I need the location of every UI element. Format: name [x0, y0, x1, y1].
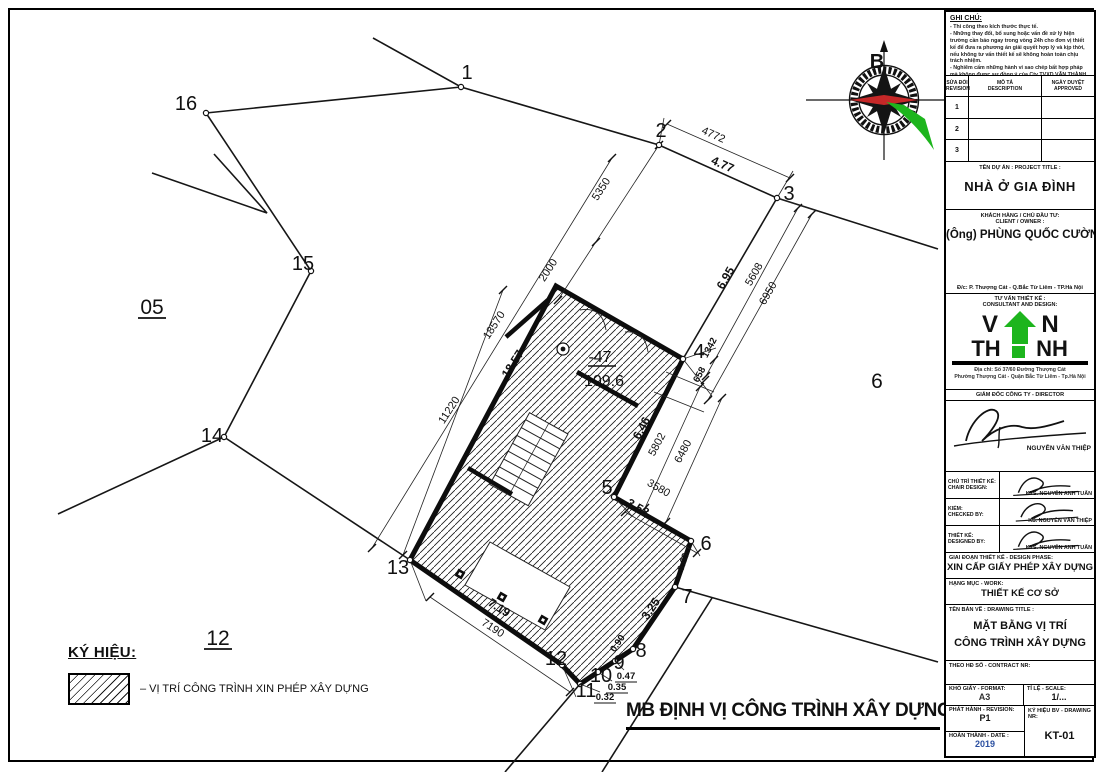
date-value: 2019 [946, 739, 1024, 749]
point-label: 13 [387, 557, 409, 579]
revision-number: 3 [946, 140, 969, 161]
dim: 0.32 [596, 692, 615, 703]
svg-text:NH: NH [1036, 336, 1068, 360]
lot-area: 109.6 [584, 373, 624, 390]
compass-rose-icon: B [806, 40, 956, 160]
meta-grid: KHỔ GIẤY - FORMAT: A3 TỈ LỆ - SCALE: 1/.… [946, 685, 1094, 756]
project-name: NHÀ Ở GIA ĐÌNH [946, 179, 1094, 194]
company-name-bar [952, 361, 1088, 365]
staff-name: KTS. NGUYỄN ANH TUẤN [1026, 545, 1092, 551]
revision-col-header: SỬA ĐỔIREVISION [946, 76, 969, 96]
staff-name: KTS. NGUYỄN ANH TUẤN [1026, 491, 1092, 497]
director-name: NGUYỄN VĂN THIỆP [1027, 445, 1091, 452]
point-label: 14 [201, 425, 223, 447]
svg-text:V: V [982, 311, 998, 338]
client-label-en: CLIENT / OWNER : [946, 219, 1094, 225]
point-label: 15 [292, 253, 314, 275]
point-label: 11 [576, 680, 597, 702]
point-label: 3 [783, 183, 794, 205]
revision-value: P1 [946, 713, 1024, 723]
scale-value: 1/... [1024, 692, 1094, 702]
director-signature [946, 401, 1092, 451]
project-section: TÊN DỰ ÁN : PROJECT TITLE : NHÀ Ở GIA ĐÌ… [946, 162, 1094, 210]
dim: 5350 [590, 176, 613, 203]
dim: 4.77 [709, 153, 736, 175]
revision-cell: PHÁT HÀNH - REVISION: P1 [946, 706, 1024, 732]
drawing-title-section: TÊN BẢN VẼ : DRAWING TITLE : MẶT BẰNG VỊ… [946, 605, 1094, 661]
project-label: TÊN DỰ ÁN : PROJECT TITLE : [946, 165, 1094, 171]
point-label: 7 [681, 586, 692, 608]
dim: 5608 [743, 261, 766, 288]
chair-design-row: CHỦ TRÌ THIẾT KẾ: CHAIR DESIGN: KTS. NGU… [946, 472, 1094, 499]
svg-text:TH: TH [971, 336, 1000, 360]
drawing-title-line1: MẶT BẰNG VỊ TRÍ [946, 620, 1094, 632]
notes-section: GHI CHÚ: - Thi công theo kích thước thực… [946, 12, 1094, 76]
drawing-number-value: KT-01 [1025, 730, 1094, 742]
phase-label: GIAI ĐOẠN THIẾT KẾ - DESIGN PHASE: [946, 553, 1094, 561]
drawing-title-label: TÊN BẢN VẼ : DRAWING TITLE : [946, 605, 1094, 613]
consultant-label-en: CONSULTANT AND DESIGN: [946, 302, 1094, 308]
parcel-label-6: 6 [871, 370, 883, 393]
compass-north-label: B [870, 51, 884, 73]
revision-row: 3 [946, 140, 1094, 161]
notes-title: GHI CHÚ: [950, 15, 1090, 22]
point-label: 8 [635, 640, 646, 662]
description-col-header: MÔ TẢDESCRIPTION [969, 76, 1042, 96]
work-label: HẠNG MỤC - WORK: [946, 579, 1094, 587]
role-label-en: DESIGNED BY: [948, 539, 999, 545]
legend: KÝ HIỆU: – VỊ TRÍ CÔNG TRÌNH XIN PHÉP XÂ… [68, 644, 398, 705]
dim: 5802 [646, 431, 668, 458]
consultant-address-1: Địa chỉ: Số 37/60 Đường Thượng Cát [946, 367, 1094, 374]
revision-row: 1 [946, 97, 1094, 119]
phase-value: XIN CẤP GIẤY PHÉP XÂY DỰNG [946, 562, 1094, 573]
designed-by-row: THIẾT KẾ: DESIGNED BY: KTS. NGUYỄN ANH T… [946, 526, 1094, 553]
checked-by-row: KIỂM: CHECKED BY: KS. NGUYỄN VĂN THIỆP [946, 499, 1094, 526]
title-block: GHI CHÚ: - Thi công theo kích thước thực… [944, 10, 1096, 758]
format-value: A3 [946, 692, 1023, 702]
dim: 658 [691, 365, 708, 384]
hatch-swatch-icon [68, 673, 130, 705]
dim: 6950 [757, 280, 780, 307]
legend-item-label: – VỊ TRÍ CÔNG TRÌNH XIN PHÉP XÂY DỰNG [140, 683, 369, 695]
point-label: 6 [700, 533, 711, 555]
note-line: - Nghiêm cấm những hành vi sao chép bất … [950, 65, 1090, 76]
contract-section: THEO HĐ SỐ - CONTRACT NR: [946, 661, 1094, 685]
scale-cell: TỈ LỆ - SCALE: 1/... [1024, 685, 1094, 705]
contract-label: THEO HĐ SỐ - CONTRACT NR: [946, 661, 1094, 669]
point-label: 16 [175, 93, 197, 115]
revision-number: 1 [946, 97, 969, 118]
client-address: Đ/c: P. Thượng Cát - Q.Bắc Từ Liêm - TP.… [946, 285, 1094, 291]
work-value: THIẾT KẾ CƠ SỞ [946, 588, 1094, 599]
dim: 4772 [700, 125, 727, 146]
note-line: - Những thay đổi, bổ sung hoặc vấn đề xử… [950, 31, 1090, 65]
role-label-en: CHECKED BY: [948, 512, 999, 518]
revision-row: 2 [946, 119, 1094, 141]
revision-number: 2 [946, 119, 969, 140]
benchmark-icon [557, 343, 569, 355]
dim: 6480 [672, 438, 694, 465]
director-label: GIÁM ĐỐC CÔNG TY - DIRECTOR [946, 390, 1094, 401]
format-cell: KHỔ GIẤY - FORMAT: A3 [946, 685, 1024, 705]
legend-title: KÝ HIỆU: [68, 644, 398, 661]
parcel-label-05: 05 [140, 296, 163, 319]
note-line: - Thi công theo kích thước thực tế. [950, 24, 1090, 31]
lot-number: -47 [588, 349, 611, 366]
drawing-sheet: { "sheet": { "bottom_title": "MB ĐỊNH VỊ… [0, 0, 1104, 772]
work-section: HẠNG MỤC - WORK: THIẾT KẾ CƠ SỞ [946, 579, 1094, 605]
consultant-address-2: Phường Thượng Cát - Quận Bắc Từ Liêm - T… [946, 374, 1094, 381]
director-section: GIÁM ĐỐC CÔNG TY - DIRECTOR NGUYỄN VĂN T… [946, 390, 1094, 472]
client-name: (Ông) PHÙNG QUỐC CƯỜNG [946, 229, 1094, 241]
dim: 2000 [537, 257, 560, 284]
date-cell: HOÀN THÀNH - DATE : 2019 [946, 732, 1024, 757]
svg-text:N: N [1041, 311, 1058, 338]
consultant-section: TƯ VẤN THIẾT KẾ : CONSULTANT AND DESIGN:… [946, 294, 1094, 390]
staff-name: KS. NGUYỄN VĂN THIỆP [1028, 518, 1092, 524]
point-label: 12 [545, 648, 567, 670]
van-thanh-logo: V N TH NH [960, 310, 1080, 360]
dim: 3580 [645, 477, 672, 500]
sheet-title: MB ĐỊNH VỊ CÔNG TRÌNH XÂY DỰNG [626, 700, 940, 730]
client-section: KHÁCH HÀNG / CHỦ ĐẦU TƯ: CLIENT / OWNER … [946, 210, 1094, 294]
dim: 0.47 [617, 671, 636, 682]
drawing-number-cell: KÝ HIỆU BV - DRAWING NR: KT-01 [1025, 706, 1094, 756]
point-label: 5 [601, 477, 612, 499]
point-label: 2 [655, 120, 666, 142]
approved-col-header: NGÀY DUYỆTAPPROVED [1042, 76, 1094, 96]
drawing-title-line2: CÔNG TRÌNH XÂY DỰNG [946, 637, 1094, 649]
dim: 18570 [481, 309, 508, 341]
role-label-en: CHAIR DESIGN: [948, 485, 999, 491]
revision-table: SỬA ĐỔIREVISION MÔ TẢDESCRIPTION NGÀY DU… [946, 76, 1094, 162]
dim: 6.95 [714, 264, 738, 292]
design-phase-section: GIAI ĐOẠN THIẾT KẾ - DESIGN PHASE: XIN C… [946, 553, 1094, 579]
point-label: 1 [461, 62, 472, 84]
